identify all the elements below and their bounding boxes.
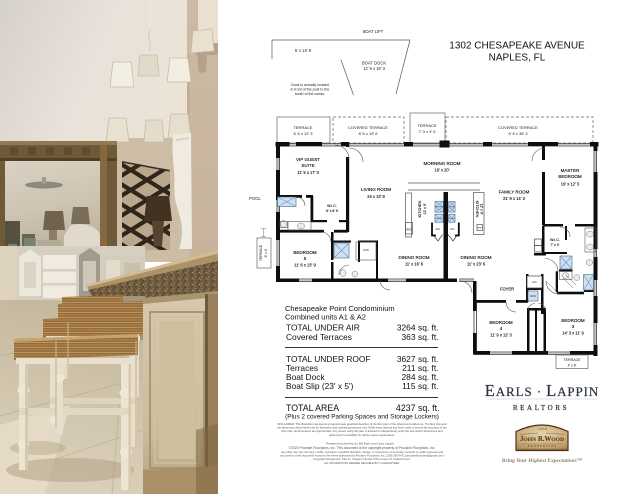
svg-text:12' 9 x 19' 3: 12' 9 x 19' 3 <box>363 66 386 71</box>
svg-text:W.I.C.: W.I.C. <box>327 204 337 208</box>
svg-text:©2020 Proclaim Floorplans, Inc: ©2020 Proclaim Floorplans, Inc. This doc… <box>289 446 435 450</box>
svg-text:TERRACE: TERRACE <box>259 244 263 261</box>
svg-text:Combined units A1 & A2: Combined units A1 & A2 <box>285 313 366 322</box>
svg-text:3: 3 <box>572 324 575 329</box>
svg-text:BEDROOM: BEDROOM <box>489 320 513 325</box>
svg-text:11' x 23' 6: 11' x 23' 6 <box>467 262 486 267</box>
svg-text:6' 6 x 38' 3: 6' 6 x 38' 3 <box>508 131 528 136</box>
svg-text:4: 4 <box>500 326 503 331</box>
svg-text:POOL: POOL <box>249 196 261 201</box>
svg-text:Bring Your Highest Expectation: Bring Your Highest Expectations™ <box>501 458 583 464</box>
svg-text:Covered Terraces: Covered Terraces <box>286 332 352 342</box>
svg-text:EARLS · LAPPIN: EARLS · LAPPIN <box>485 381 599 400</box>
svg-text:COVERED TERRACE: COVERED TERRACE <box>498 125 538 130</box>
svg-text:determine the suitability for: determine the suitability for his/her sp… <box>329 433 395 437</box>
svg-text:W.I.C.: W.I.C. <box>550 238 560 242</box>
svg-text:KITCHEN: KITCHEN <box>475 201 479 218</box>
svg-text:11' 9 x 17' 3: 11' 9 x 17' 3 <box>297 170 319 175</box>
svg-text:the dimensions listed herein a: the dimensions listed herein are for ill… <box>277 426 447 430</box>
svg-text:4' x 8': 4' x 8' <box>568 364 577 368</box>
svg-text:TERRACE: TERRACE <box>563 358 581 362</box>
svg-text:16' x 20': 16' x 20' <box>435 168 450 173</box>
svg-text:KITCHEN: KITCHEN <box>418 200 422 217</box>
svg-text:A/C: A/C <box>435 227 440 231</box>
svg-text:W/D: W/D <box>363 248 368 252</box>
svg-text:1 9 5 8: 1 9 5 8 <box>538 427 547 431</box>
svg-text:sq. ft.: sq. ft. <box>418 323 438 333</box>
svg-text:Boat Slip (23' x 5'): Boat Slip (23' x 5') <box>286 381 354 391</box>
svg-text:BEDROOM: BEDROOM <box>558 174 582 179</box>
svg-text:FAMILY ROOM: FAMILY ROOM <box>499 190 530 195</box>
svg-text:A/C: A/C <box>450 227 455 231</box>
svg-text:8' 6 x 19' 6: 8' 6 x 19' 6 <box>358 131 378 136</box>
svg-text:BEDROOM: BEDROOM <box>561 318 585 323</box>
svg-text:A/C: A/C <box>532 280 537 284</box>
svg-text:BOAT DOCK: BOAT DOCK <box>362 61 386 66</box>
svg-text:5' x 16' 9: 5' x 16' 9 <box>295 48 312 53</box>
svg-text:TOTAL AREA: TOTAL AREA <box>286 403 339 413</box>
svg-text:PROPERTIES: PROPERTIES <box>528 444 558 448</box>
svg-text:363: 363 <box>402 332 416 342</box>
svg-text:JOHN R.WOOD: JOHN R.WOOD <box>520 436 564 443</box>
svg-text:Copyright infringement: Title: Copyright infringement: Title 17, Chapte… <box>313 457 411 461</box>
svg-text:SUITE: SUITE <box>301 163 314 168</box>
svg-text:VIP GUEST: VIP GUEST <box>296 157 320 162</box>
svg-text:TOTAL UNDER AIR: TOTAL UNDER AIR <box>286 323 360 333</box>
svg-text:14' 3 x 11' 9: 14' 3 x 11' 9 <box>562 331 584 336</box>
svg-text:COVERED TERRACE: COVERED TERRACE <box>348 125 388 130</box>
svg-text:NAPLES, FL: NAPLES, FL <box>489 53 546 64</box>
svg-text:Dock is actually located: Dock is actually located <box>291 83 329 87</box>
svg-text:south of the condo.: south of the condo. <box>295 92 326 96</box>
svg-text:115: 115 <box>402 381 416 391</box>
svg-text:REF: REF <box>478 228 483 230</box>
svg-text:4237: 4237 <box>396 403 416 413</box>
svg-text:8' x 4': 8' x 4' <box>264 248 268 257</box>
svg-text:floor plan, all dimensions are: floor plan, all dimensions are approxima… <box>282 429 443 433</box>
svg-text:ALL INFORMATION DEEMED RELIABL: ALL INFORMATION DEEMED RELIABLE BUT GUAR… <box>324 461 400 465</box>
svg-text:TERRACE: TERRACE <box>293 125 312 130</box>
svg-text:7' 3 x 9' 5: 7' 3 x 9' 5 <box>419 129 437 134</box>
svg-text:sq. ft.: sq. ft. <box>418 332 438 342</box>
svg-text:REALTORS: REALTORS <box>513 404 569 412</box>
svg-text:5: 5 <box>304 256 307 261</box>
svg-text:11' 6 x 13' 9: 11' 6 x 13' 9 <box>294 263 316 268</box>
svg-text:BEDROOM: BEDROOM <box>293 250 317 255</box>
svg-text:21' 9 x 14' 3: 21' 9 x 14' 3 <box>503 196 526 201</box>
svg-text:MASTER: MASTER <box>561 168 581 173</box>
svg-text:3264: 3264 <box>397 323 416 333</box>
svg-text:6' x 6' 9: 6' x 6' 9 <box>326 209 338 213</box>
svg-text:12' x 9': 12' x 9' <box>423 203 427 214</box>
svg-text:1302 CHESAPEAKE AVENUE: 1302 CHESAPEAKE AVENUE <box>449 41 585 52</box>
svg-text:24 x 13' 9: 24 x 13' 9 <box>367 194 385 199</box>
svg-text:REF: REF <box>406 228 412 232</box>
svg-text:7' x 4': 7' x 4' <box>551 243 560 247</box>
svg-text:sq. ft.: sq. ft. <box>418 403 440 413</box>
svg-text:FOYER: FOYER <box>500 287 514 292</box>
svg-text:MORNING ROOM: MORNING ROOM <box>424 161 461 166</box>
svg-text:19' x 12' 3: 19' x 12' 3 <box>561 182 580 187</box>
svg-text:BOAT LIFT: BOAT LIFT <box>363 29 384 34</box>
svg-text:12' x 9': 12' x 9' <box>480 204 484 215</box>
svg-text:TERRACE: TERRACE <box>417 123 436 128</box>
svg-text:Any other use may not copy, mo: Any other use may not copy, modify, repr… <box>281 450 444 454</box>
svg-text:11' x 16' 6: 11' x 16' 6 <box>405 262 424 267</box>
svg-text:11' 9 x 12' 3: 11' 9 x 12' 3 <box>490 333 512 338</box>
svg-text:6' 6 x 12' 3: 6' 6 x 12' 3 <box>293 131 313 136</box>
svg-text:DINING ROOM: DINING ROOM <box>399 255 430 260</box>
svg-text:W/D: W/D <box>530 294 535 298</box>
svg-text:LIVING ROOM: LIVING ROOM <box>361 187 391 192</box>
svg-text:sq. ft.: sq. ft. <box>418 381 438 391</box>
svg-text:(Plus 2 covered Parking Spaces: (Plus 2 covered Parking Spaces and Stora… <box>285 414 439 421</box>
svg-text:any portion of this document e: any portion of this document except to t… <box>280 454 444 458</box>
svg-text:Prepared exclusively for Bill: Prepared exclusively for Bill Earls and … <box>326 442 394 446</box>
svg-text:in front of the post to the: in front of the post to the <box>291 88 330 92</box>
svg-text:DISCLAIMER: This illustration: DISCLAIMER: This illustration represents… <box>278 422 447 426</box>
svg-text:DINING ROOM: DINING ROOM <box>461 255 492 260</box>
